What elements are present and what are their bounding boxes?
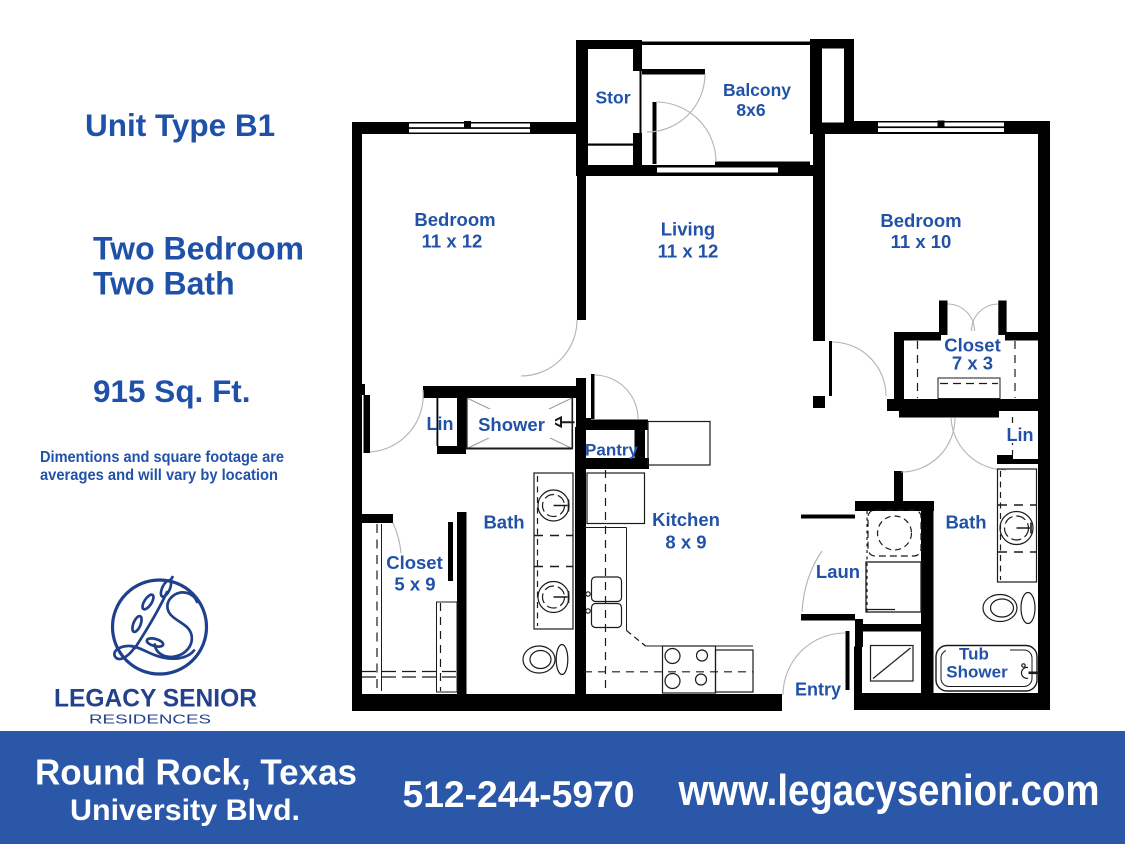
svg-text:Living: Living [661, 219, 715, 240]
svg-text:11 x 12: 11 x 12 [658, 241, 719, 262]
svg-text:Two Bath: Two Bath [93, 266, 235, 302]
svg-text:LEGACY SENIOR: LEGACY SENIOR [54, 685, 257, 713]
svg-text:Bedroom: Bedroom [880, 210, 961, 231]
svg-text:Bedroom: Bedroom [414, 209, 495, 230]
svg-text:11 x 10: 11 x 10 [891, 231, 952, 252]
svg-text:Bath: Bath [483, 512, 524, 533]
svg-text:Tub: Tub [959, 645, 989, 664]
svg-text:Laun: Laun [816, 561, 860, 582]
svg-text:Entry: Entry [795, 680, 841, 700]
svg-text:averages and will vary by loca: averages and will vary by location [40, 467, 278, 484]
svg-text:Pantry: Pantry [585, 441, 638, 460]
svg-text:Shower: Shower [478, 414, 545, 435]
svg-text:Two Bedroom: Two Bedroom [93, 231, 304, 267]
svg-text:8 x 9: 8 x 9 [665, 532, 706, 553]
svg-text:Kitchen: Kitchen [652, 509, 720, 530]
svg-text:Lin: Lin [1007, 425, 1034, 445]
svg-text:Shower: Shower [946, 663, 1008, 682]
svg-text:7 x 3: 7 x 3 [952, 353, 993, 374]
svg-text:915 Sq. Ft.: 915 Sq. Ft. [93, 373, 251, 409]
svg-text:Lin: Lin [427, 414, 454, 434]
svg-text:Unit Type B1: Unit Type B1 [85, 107, 275, 143]
svg-text:5 x 9: 5 x 9 [394, 574, 435, 595]
svg-text:www.legacysenior.com: www.legacysenior.com [678, 766, 1100, 815]
svg-text:Balcony: Balcony [723, 80, 791, 100]
svg-text:Dimentions and square footage: Dimentions and square footage are [40, 449, 284, 466]
svg-text:8x6: 8x6 [736, 100, 765, 120]
svg-text:Closet: Closet [386, 552, 443, 573]
svg-text:11 x 12: 11 x 12 [422, 231, 483, 252]
svg-text:RESIDENCES: RESIDENCES [89, 712, 211, 727]
svg-text:512-244-5970: 512-244-5970 [403, 773, 635, 815]
svg-text:Bath: Bath [945, 512, 986, 533]
svg-text:Stor: Stor [596, 88, 631, 108]
svg-text:University Blvd.: University Blvd. [70, 794, 300, 827]
svg-text:Round Rock, Texas: Round Rock, Texas [35, 752, 357, 793]
